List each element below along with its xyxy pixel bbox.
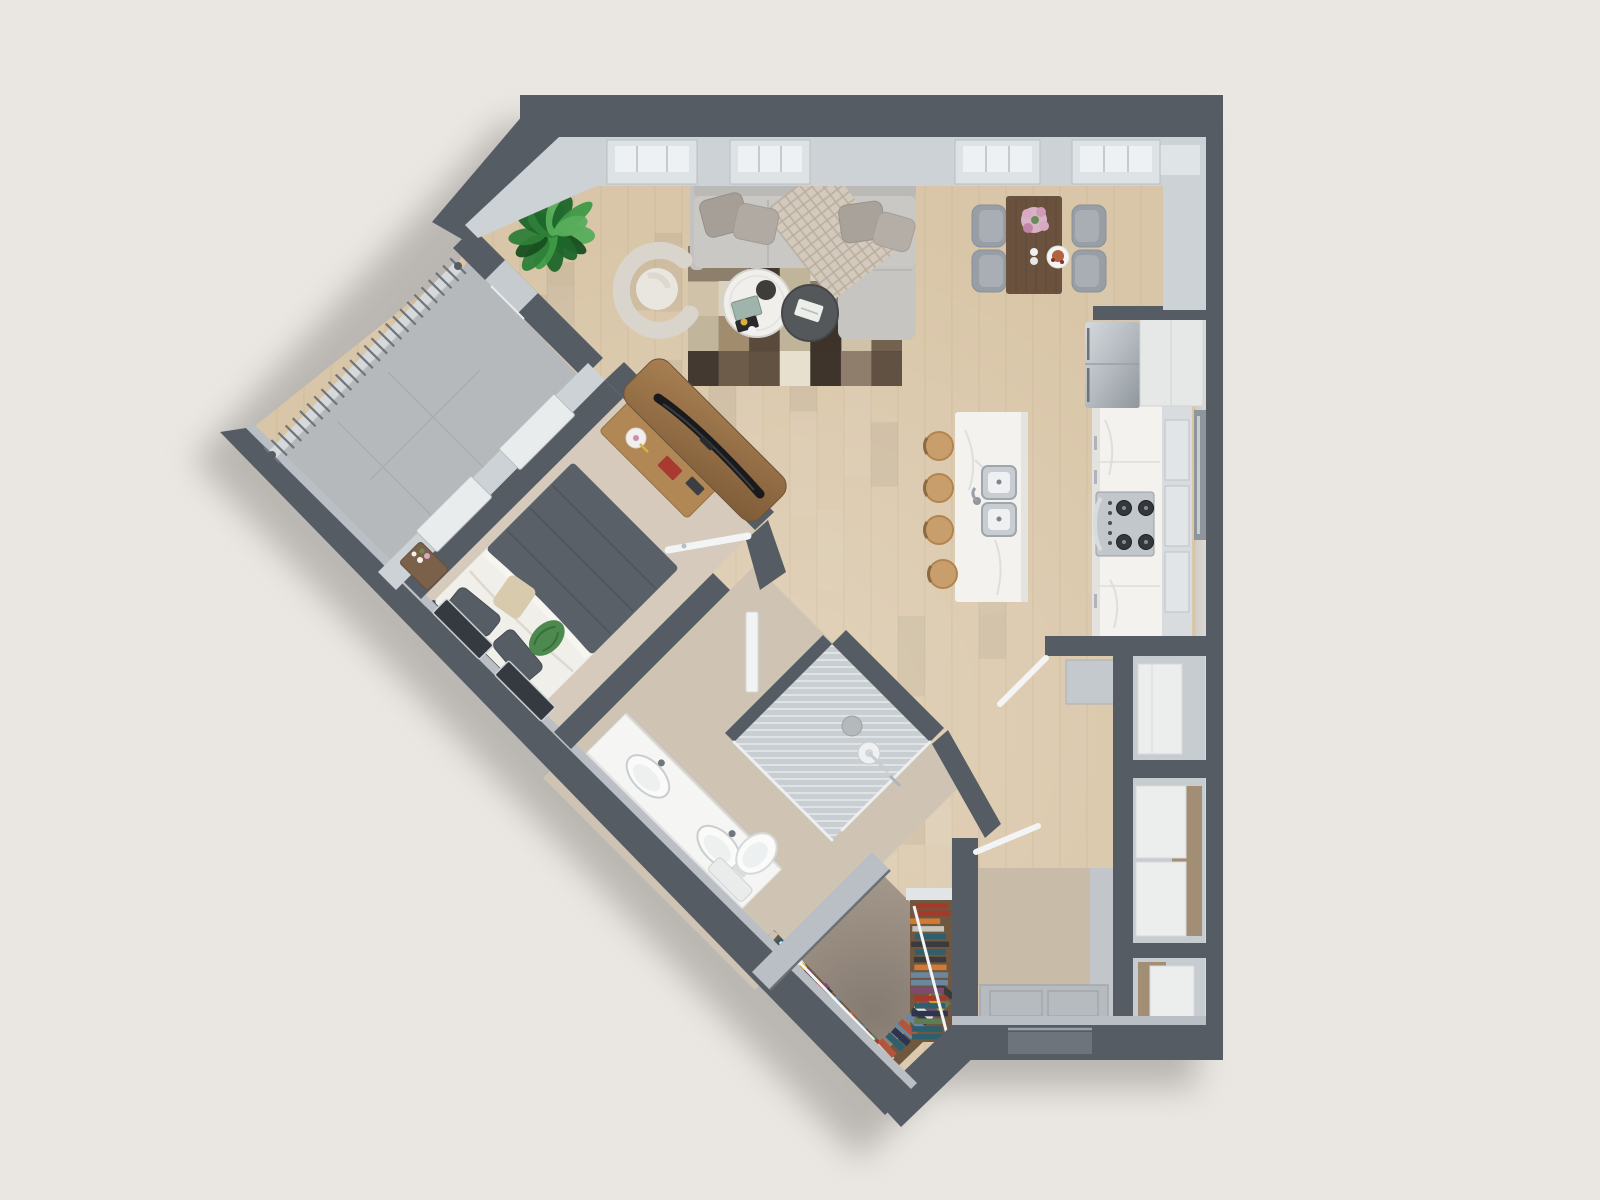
- wall-utility-divider: [1133, 760, 1206, 778]
- pantry-cabinet: [1066, 660, 1120, 704]
- flower-centerpiece: [1021, 207, 1049, 233]
- railing-post: [454, 262, 462, 270]
- rug-patch: [841, 351, 872, 387]
- fridge-handle: [1087, 328, 1090, 360]
- cabinet-handle: [1094, 594, 1097, 608]
- fridge: [1085, 322, 1140, 408]
- window: [955, 140, 1040, 184]
- coffee-table-bowl: [756, 280, 776, 300]
- table-pepper: [1030, 257, 1038, 265]
- book: [912, 926, 944, 932]
- rug-patch: [688, 351, 719, 387]
- wall-entry-left: [952, 838, 978, 1040]
- book: [910, 988, 944, 994]
- book: [915, 903, 948, 909]
- utility-appliance: [1136, 862, 1186, 936]
- book: [914, 957, 946, 963]
- book: [911, 942, 949, 948]
- island-edge-face: [1021, 412, 1028, 602]
- tray-cup: [748, 326, 756, 334]
- dining-chair-seat: [1075, 255, 1099, 287]
- book: [915, 934, 946, 940]
- cooktop: [1095, 492, 1154, 556]
- book: [915, 911, 951, 917]
- book: [910, 918, 940, 924]
- cabinet-handle: [1094, 436, 1097, 450]
- rug-patch: [749, 351, 780, 387]
- railing-post: [268, 451, 276, 459]
- wall-right: [1206, 95, 1223, 1060]
- rug-patch: [719, 351, 750, 387]
- utility-appliance: [1136, 786, 1186, 858]
- book: [915, 949, 946, 955]
- floorplan-svg: [0, 0, 1600, 1200]
- book: [914, 1019, 946, 1025]
- bedroom-door-handle: [682, 544, 687, 549]
- fridge-handle: [1087, 368, 1090, 402]
- entry-floor: [976, 868, 1090, 986]
- entry-door-panel: [1008, 1032, 1092, 1054]
- wall-kitchen-bottom: [1045, 636, 1206, 656]
- window: [607, 140, 697, 184]
- closet-stack-cap: [906, 888, 960, 900]
- floorplan-stage: [0, 0, 1600, 1200]
- rug-patch: [871, 351, 902, 387]
- utility-shelf: [1150, 966, 1194, 1018]
- window-slot-light: [1197, 416, 1200, 534]
- dining-chair-seat: [1075, 210, 1099, 242]
- bottom-wall-face: [952, 1016, 1206, 1025]
- desk-dish-item: [633, 435, 639, 441]
- book: [914, 995, 947, 1001]
- book: [911, 980, 948, 986]
- rug-patch: [810, 351, 841, 387]
- bathroom-door: [746, 612, 758, 692]
- plate-berry: [1060, 260, 1064, 264]
- rug-patch: [780, 351, 811, 387]
- dining-chair-seat: [979, 210, 1003, 242]
- stacked-laundry: [1138, 664, 1182, 754]
- upper-cabinet: [1165, 552, 1189, 612]
- upper-cabinet: [1165, 420, 1189, 480]
- corner-light: [1160, 145, 1200, 175]
- window: [730, 140, 810, 184]
- table-salt: [1030, 248, 1038, 256]
- book: [912, 1026, 943, 1032]
- wall-top: [520, 95, 1223, 137]
- wall-utility-left: [1113, 656, 1133, 1025]
- wall-utility-divider: [1133, 943, 1206, 958]
- tray-item: [741, 319, 748, 326]
- upper-cabinet: [1165, 486, 1189, 546]
- dining-nook: [972, 196, 1106, 294]
- book: [911, 972, 949, 978]
- plate-berry: [1051, 258, 1055, 262]
- dining-chair-seat: [979, 255, 1003, 287]
- cabinet-handle: [1094, 470, 1097, 484]
- shower-drain-light: [842, 716, 862, 736]
- window: [1072, 140, 1160, 184]
